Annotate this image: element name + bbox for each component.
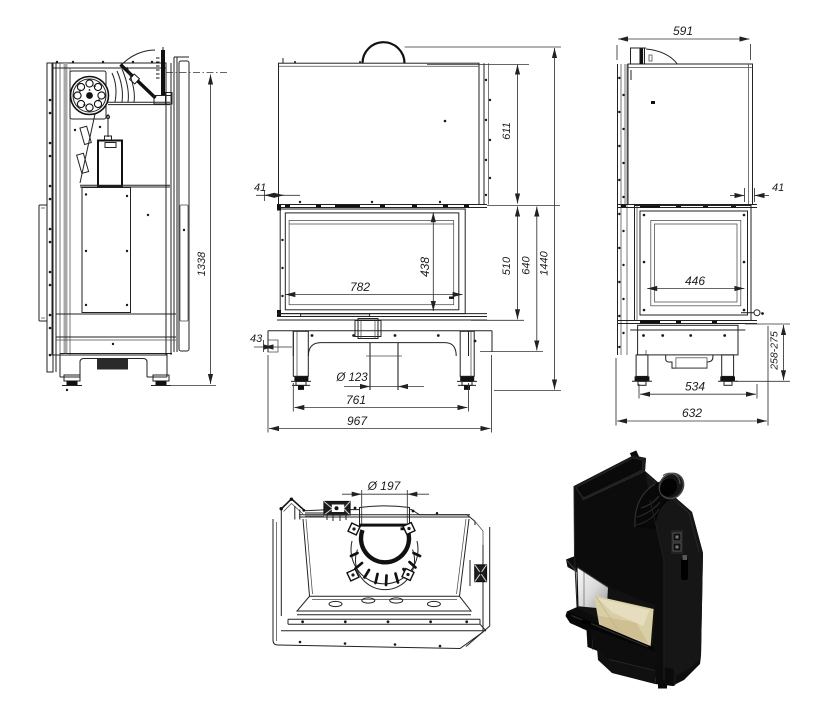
svg-text:438: 438 (418, 257, 432, 277)
svg-text:1338: 1338 (196, 251, 208, 276)
svg-text:967: 967 (347, 414, 368, 428)
svg-text:591: 591 (673, 24, 693, 38)
svg-text:258-275: 258-275 (769, 331, 781, 371)
svg-text:640: 640 (521, 255, 533, 274)
svg-text:632: 632 (682, 406, 702, 420)
svg-text:Ø 123: Ø 123 (335, 372, 368, 384)
svg-text:611: 611 (501, 122, 513, 140)
svg-text:41: 41 (254, 182, 266, 194)
svg-text:534: 534 (685, 380, 705, 394)
svg-text:510: 510 (501, 256, 513, 275)
svg-text:761: 761 (346, 393, 366, 407)
svg-text:43: 43 (250, 333, 263, 345)
svg-text:782: 782 (350, 280, 370, 294)
svg-text:Ø 197: Ø 197 (367, 479, 402, 493)
svg-text:1440: 1440 (539, 250, 551, 275)
svg-text:41: 41 (772, 182, 784, 194)
svg-text:446: 446 (685, 274, 705, 288)
